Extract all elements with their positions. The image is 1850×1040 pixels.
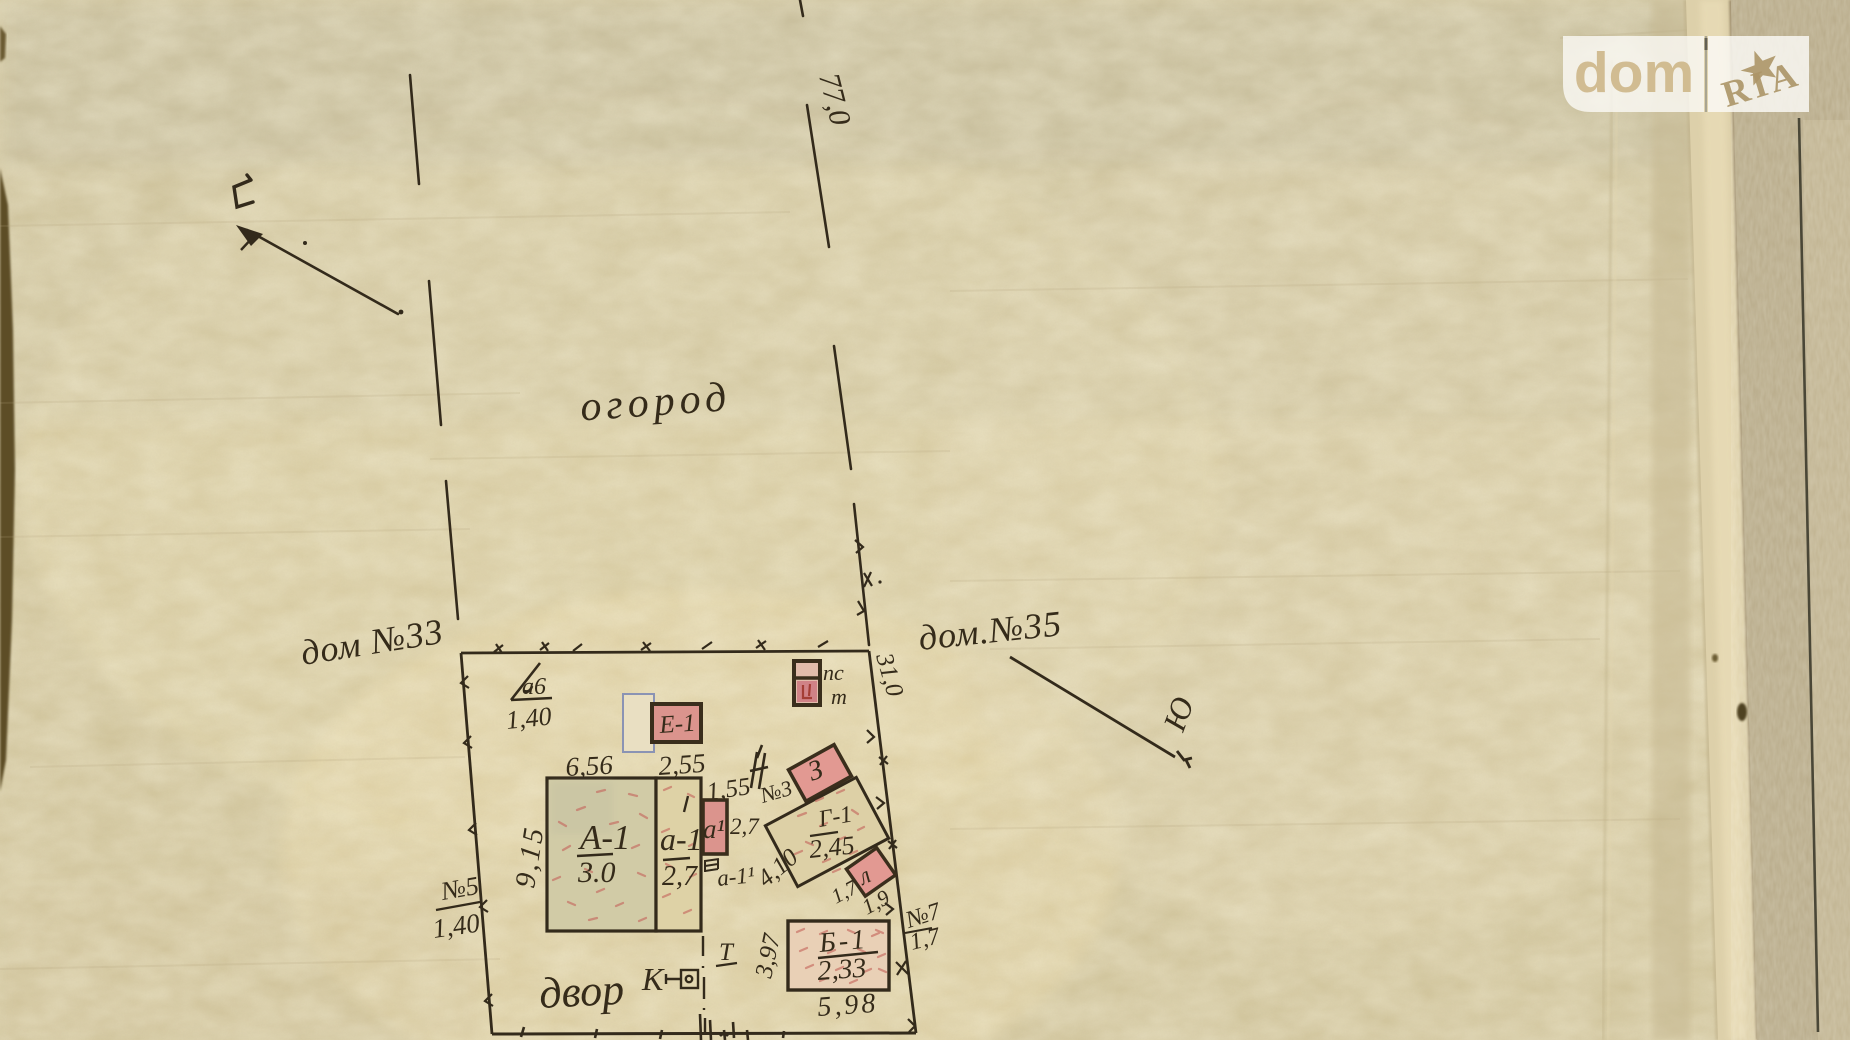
svg-text:dom: dom <box>1574 41 1694 105</box>
